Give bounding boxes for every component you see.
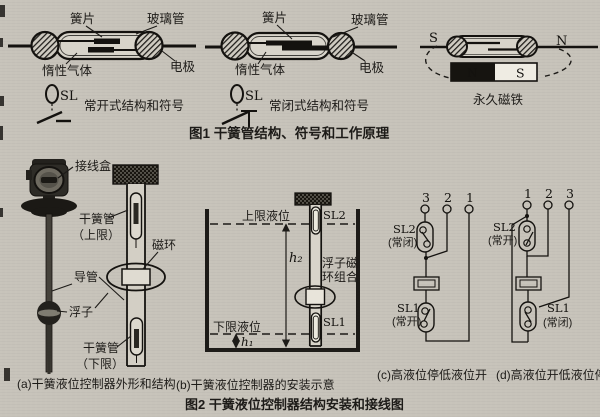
reed-upper-label-1: 干簧管 — [79, 211, 115, 226]
sl1-label: SL1 — [547, 301, 570, 315]
open-symbol-caption: 常开式结构和符号 — [84, 98, 184, 113]
flux-line-right — [541, 49, 571, 77]
sl1-mode-label: (常开) — [392, 315, 421, 328]
sl-coil-icon — [231, 85, 243, 103]
wire-t3-sl1 — [539, 209, 569, 307]
figure1: 簧片 玻璃管 惰性气体 电极 SL 常开式结构和符号 — [8, 10, 598, 141]
figure2: 接线盒 干簧管 （上限） 磁环 导管 浮子 干簧管 （下限） (a)干簧液位控制… — [17, 158, 600, 412]
head-tab — [26, 170, 32, 180]
installation-diagram: 上限液位 下限液位 SL2 SL1 h₂ h₁ 浮子磁 环组合 (b)干簧液位控… — [176, 193, 360, 392]
terminal-2 — [544, 201, 552, 209]
junction-box-label: 接线盒 — [75, 158, 111, 173]
reed-bottom-bar — [88, 47, 114, 53]
electrode-right — [328, 33, 354, 59]
fig2-caption: 图2 干簧液位控制器结构安装和接线图 — [185, 397, 404, 412]
electrode-right — [517, 37, 537, 57]
closed-symbol-caption: 常闭式结构和符号 — [269, 98, 369, 113]
gas-label: 惰性气体 — [42, 63, 93, 78]
sl2-label: SL2 — [393, 222, 416, 236]
reed-capsule-upper-core — [134, 203, 139, 224]
sl-coil-icon — [46, 85, 58, 103]
controller-structure-diagram: 接线盒 干簧管 （上限） 磁环 导管 浮子 干簧管 （下限） (a)干簧液位控制… — [17, 158, 176, 391]
caption-c: (c)高液位停低液位开 — [377, 367, 487, 382]
reed-top-bar — [266, 41, 312, 46]
scanned-page: 簧片 玻璃管 惰性气体 电极 SL 常开式结构和符号 — [0, 0, 600, 417]
scan-artifacts — [0, 5, 10, 381]
reed-switch-closed-diagram: 簧片 玻璃管 惰性气体 电极 SL 常闭式结构和符号 — [205, 10, 397, 127]
electrode-label: 电极 — [170, 60, 196, 74]
sl2-mode-label: (常闭) — [388, 236, 417, 249]
magnet-caption: 永久磁铁 — [473, 92, 524, 107]
leader-float-right — [95, 293, 108, 308]
head-slot — [41, 177, 57, 183]
terminal-label-1: 1 — [524, 186, 532, 201]
tube-assembly — [107, 165, 165, 366]
sl-symbol-closed: SL — [222, 85, 263, 127]
magnet-n-label: N — [467, 66, 478, 80]
terminal-1 — [465, 205, 473, 213]
sl2-contact-top — [524, 226, 530, 232]
glass-label: 玻璃管 — [351, 12, 389, 27]
reed-label: 簧片 — [262, 10, 287, 25]
terminal-3 — [421, 205, 429, 213]
magnet-s-label: S — [516, 66, 525, 81]
sl2-contact-arm — [526, 232, 533, 245]
lower-level-label: 下限液位 — [213, 319, 261, 334]
electrode-left — [447, 37, 467, 57]
terminal-2 — [443, 205, 451, 213]
electrode-left — [222, 33, 249, 60]
sl-text: SL — [60, 89, 78, 104]
sl1-contact-bottom — [421, 321, 427, 327]
reed-lower-label-2: （下限） — [76, 357, 124, 371]
sl1-contact-arm — [424, 309, 430, 321]
reed-switch-magnet-diagram: S N N S 永久磁铁 — [420, 31, 598, 107]
terminal-label-2: 2 — [545, 186, 553, 201]
sl2-label: SL2 — [493, 220, 516, 234]
reed-capsule-lower-core — [134, 329, 139, 348]
float-ring — [306, 289, 325, 305]
tank-bottom — [205, 348, 360, 352]
caption-d: (d)高液位开低液位停 — [496, 367, 600, 382]
wiring-diagram-c: 3 2 1 SL2 (常闭) SL1 (常开) ( — [377, 190, 487, 382]
reed-lower-label-1: 干簧管 — [83, 340, 119, 355]
ring-label: 磁环 — [152, 237, 176, 252]
h1-label: h₁ — [241, 335, 254, 349]
electrode-left — [32, 32, 59, 59]
sl2-contact-top — [420, 227, 426, 233]
reed-top-bar — [94, 39, 120, 45]
mount-block — [295, 193, 331, 205]
upper-level-label: 上限液位 — [242, 208, 290, 223]
terminal-label-1: 1 — [466, 190, 474, 205]
sl-text: SL — [245, 89, 263, 104]
pole-left-label: S — [429, 31, 438, 46]
tube-label: 导管 — [74, 269, 98, 284]
terminal-label-3: 3 — [566, 186, 574, 201]
float-ball-band — [38, 310, 60, 317]
wire-sl2-t2 — [527, 209, 548, 256]
bar-magnet: N S — [451, 63, 537, 81]
connector-block-inner — [520, 280, 537, 287]
flux-line-left — [426, 46, 450, 78]
reed-switch-open-diagram: 簧片 玻璃管 惰性气体 电极 SL 常开式结构和符号 — [8, 11, 196, 123]
terminal-label-2: 2 — [444, 190, 452, 205]
tank-wall-left — [205, 209, 209, 352]
float-ring-label-1: 浮子磁 — [322, 255, 358, 270]
sl2-contact-arm — [422, 232, 429, 242]
reed-bottom-bar — [282, 46, 328, 51]
sl1-label: SL1 — [323, 315, 346, 329]
terminal-1 — [523, 201, 531, 209]
glass-label: 玻璃管 — [147, 11, 185, 26]
terminal-label-3: 3 — [422, 190, 430, 205]
reed-label: 簧片 — [70, 11, 95, 26]
fig1-caption: 图1 干簧管结构、符号和工作原理 — [189, 125, 390, 141]
sl2-mode-label: (常开) — [488, 234, 517, 247]
leader-tube-left — [52, 284, 72, 291]
contact-arm — [222, 112, 248, 124]
figure-svg: 簧片 玻璃管 惰性气体 电极 SL 常开式结构和符号 — [0, 0, 600, 417]
h2-label: h₂ — [289, 251, 303, 266]
caption-a: (a)干簧液位控制器外形和结构 — [17, 376, 176, 391]
terminal-3 — [565, 201, 573, 209]
electrode-label: 电极 — [359, 61, 385, 75]
probe-device — [21, 159, 77, 374]
leader-electrode — [350, 51, 365, 61]
pole-right-label: N — [556, 34, 567, 49]
float-ring-label-2: 环组合 — [322, 269, 358, 284]
reed-upper-label-2: （上限） — [72, 228, 120, 242]
connector-block-inner — [418, 280, 435, 287]
sl1-mode-label: (常闭) — [543, 316, 572, 329]
mount-block — [113, 165, 158, 184]
magnet-ring — [122, 269, 150, 285]
gas-label: 惰性气体 — [235, 62, 286, 77]
sl2-label: SL2 — [323, 208, 346, 222]
caption-b: (b)干簧液位控制器的安装示意 — [176, 377, 335, 392]
electrode-right — [136, 32, 163, 59]
sl-symbol-open: SL — [37, 85, 78, 123]
float-label: 浮子 — [69, 305, 93, 319]
wiring-diagram-d: 1 2 3 SL2 (常开) SL1 — [488, 186, 600, 382]
sl1-label: SL1 — [397, 301, 420, 315]
